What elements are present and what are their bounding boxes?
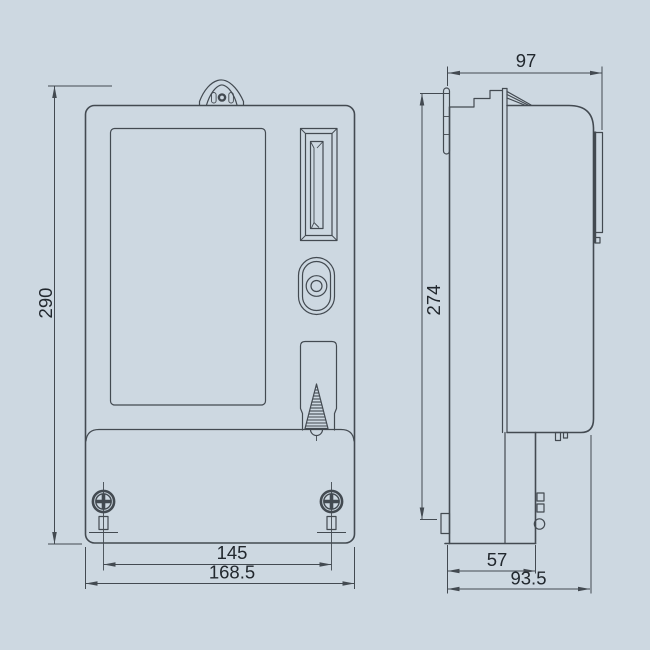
lcd-window [111, 129, 266, 406]
cone-hatching [306, 387, 328, 426]
button-outer-ring [299, 258, 335, 315]
dim-label-274: 274 [423, 285, 444, 316]
card-cover-protrusion [595, 132, 603, 244]
hanging-bracket [200, 80, 244, 105]
front-cover-profile [507, 106, 594, 433]
front-view: 290 145 168.5 [35, 80, 355, 589]
top-step-profile [450, 91, 503, 108]
card-slot-inner-frame [306, 134, 333, 236]
dim-label-290: 290 [35, 288, 56, 319]
terminal-screw-right [317, 482, 346, 571]
seal-cone [305, 384, 328, 441]
dim-label-57: 57 [487, 549, 508, 570]
button-center [311, 281, 322, 292]
dimension-side-depth-overall: 93.5 [448, 435, 592, 594]
card-slot-opening-detail [311, 142, 324, 229]
bracket-slot-left [212, 93, 217, 104]
dim-label-168-5: 168.5 [209, 562, 255, 583]
meter-technical-drawing: 290 145 168.5 [0, 0, 650, 650]
dimension-front-height: 290 [35, 86, 112, 544]
dim-label-97: 97 [516, 50, 537, 71]
card-slot-opening [311, 142, 324, 229]
terminal-screw-left [89, 482, 118, 571]
cone-outline [305, 384, 328, 429]
button-circle [306, 276, 327, 297]
dimension-side-depth-upper: 97 [448, 50, 603, 130]
card-slot [301, 129, 338, 241]
side-body-profile [450, 89, 603, 544]
bracket-rib [503, 89, 508, 433]
back-plate-outline [444, 88, 450, 154]
back-plate [444, 88, 450, 154]
seal-screw-dome [311, 430, 323, 436]
dimension-side-height: 274 [420, 94, 450, 520]
nameplate-panel [301, 342, 337, 442]
hanging-hole-center [220, 96, 224, 100]
dim-label-93-5: 93.5 [510, 568, 546, 589]
lower-hanging-tab [441, 514, 450, 534]
terminal-cover-profile [441, 433, 568, 544]
cover-clip-tab [564, 433, 568, 439]
side-view: 97 274 57 93.5 [420, 50, 603, 594]
dim-label-145: 145 [217, 542, 248, 563]
round-button [299, 258, 335, 315]
cover-clip-tab [556, 433, 561, 441]
bracket-gusset [507, 92, 531, 106]
